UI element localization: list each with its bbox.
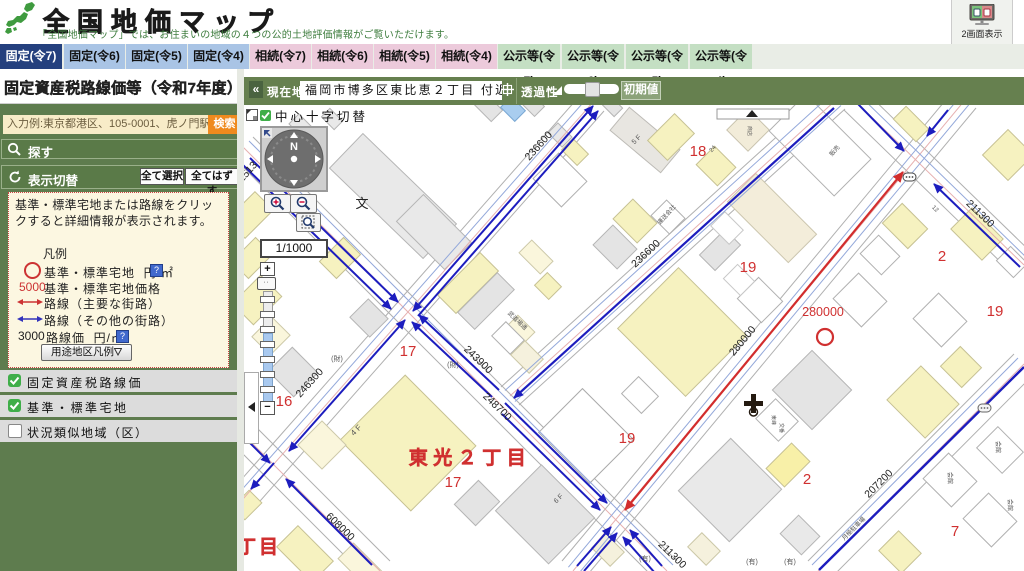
svg-text:会館: 会館 bbox=[946, 472, 954, 484]
svg-text:商店: 商店 bbox=[746, 126, 753, 136]
svg-text:丁目: 丁目 bbox=[244, 537, 281, 558]
svg-text:2: 2 bbox=[938, 248, 946, 265]
svg-text:(有): (有) bbox=[784, 557, 796, 566]
svg-text:17: 17 bbox=[445, 474, 462, 491]
svg-text:(有): (有) bbox=[639, 554, 651, 563]
svg-text:(財): (財) bbox=[447, 360, 459, 369]
svg-text:19: 19 bbox=[619, 430, 636, 447]
svg-text:東峰: 東峰 bbox=[770, 415, 777, 425]
svg-text:文: 文 bbox=[355, 196, 368, 211]
svg-text:19: 19 bbox=[740, 259, 757, 276]
svg-text:(有): (有) bbox=[746, 557, 758, 566]
svg-text:19: 19 bbox=[987, 303, 1004, 320]
svg-text:交番: 交番 bbox=[778, 423, 785, 433]
svg-text:N: N bbox=[290, 141, 298, 153]
svg-text:会館: 会館 bbox=[1006, 499, 1014, 511]
svg-text:(財): (財) bbox=[331, 354, 343, 363]
svg-text:18: 18 bbox=[690, 143, 707, 160]
svg-text:280000: 280000 bbox=[802, 305, 844, 319]
svg-text:16: 16 bbox=[276, 393, 293, 410]
svg-text:17: 17 bbox=[400, 343, 417, 360]
svg-text:2: 2 bbox=[803, 471, 811, 488]
svg-text:7: 7 bbox=[951, 523, 959, 540]
svg-text:東光２丁目: 東光２丁目 bbox=[409, 446, 532, 469]
svg-text:会館: 会館 bbox=[994, 441, 1002, 453]
